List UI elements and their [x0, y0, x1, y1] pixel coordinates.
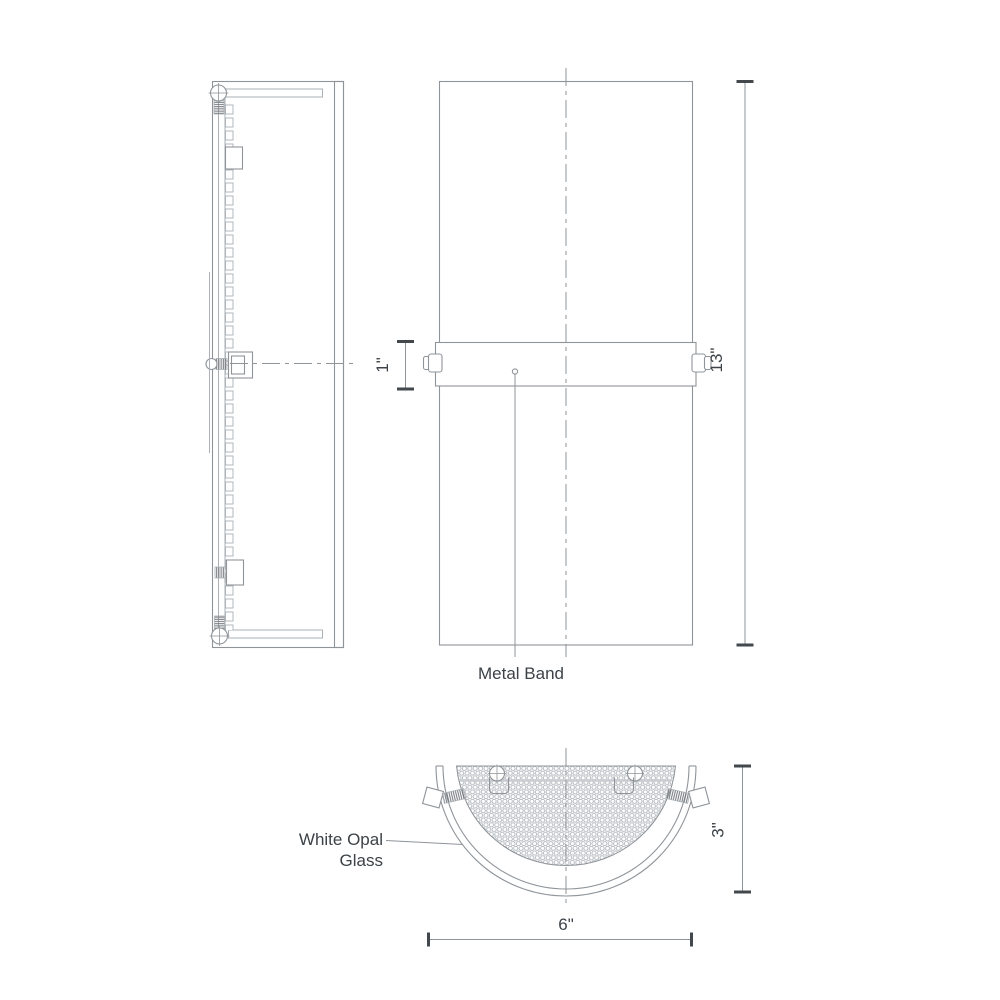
tab-plate [423, 787, 444, 808]
top-plan-view: White Opal Glass 3" 6" [299, 748, 751, 947]
tab-plate [689, 787, 710, 808]
dimension-text-projection-depth: 3" [709, 822, 728, 838]
screw-head [206, 359, 217, 370]
dimension-text-band-height: 1" [373, 357, 392, 373]
side-section-view [206, 82, 358, 648]
dimension-text-overall-width: 6" [558, 915, 574, 934]
white-opal-label-line2: Glass [340, 851, 383, 870]
driver-box-top [226, 147, 243, 169]
band-clamp-left [424, 354, 443, 372]
driver-box-bottom [227, 560, 244, 585]
screw-shank [214, 100, 224, 114]
dimension-overall-width: 6" [429, 915, 692, 947]
dimension-overall-height: 13" [707, 82, 754, 646]
front-view: Metal Band 1" 13" [373, 68, 754, 683]
white-opal-label-line1: White Opal [299, 830, 383, 849]
dimension-band-height: 1" [373, 342, 414, 390]
wall-sconce-dimension-drawing: Metal Band 1" 13" [0, 0, 1000, 1000]
clamp-body [429, 354, 443, 372]
leader-dot [512, 369, 517, 374]
side-tab-right [666, 787, 709, 808]
side-tab-left [423, 787, 466, 808]
metal-band-label: Metal Band [478, 664, 564, 683]
clamp-body [692, 354, 706, 372]
screw-shank [216, 359, 227, 370]
mounting-screw-lower [215, 567, 225, 578]
white-opal-leader-line [386, 841, 463, 845]
dimension-text-overall-height: 13" [707, 348, 726, 373]
dimension-projection-depth: 3" [709, 766, 752, 892]
junction-box [229, 352, 253, 378]
